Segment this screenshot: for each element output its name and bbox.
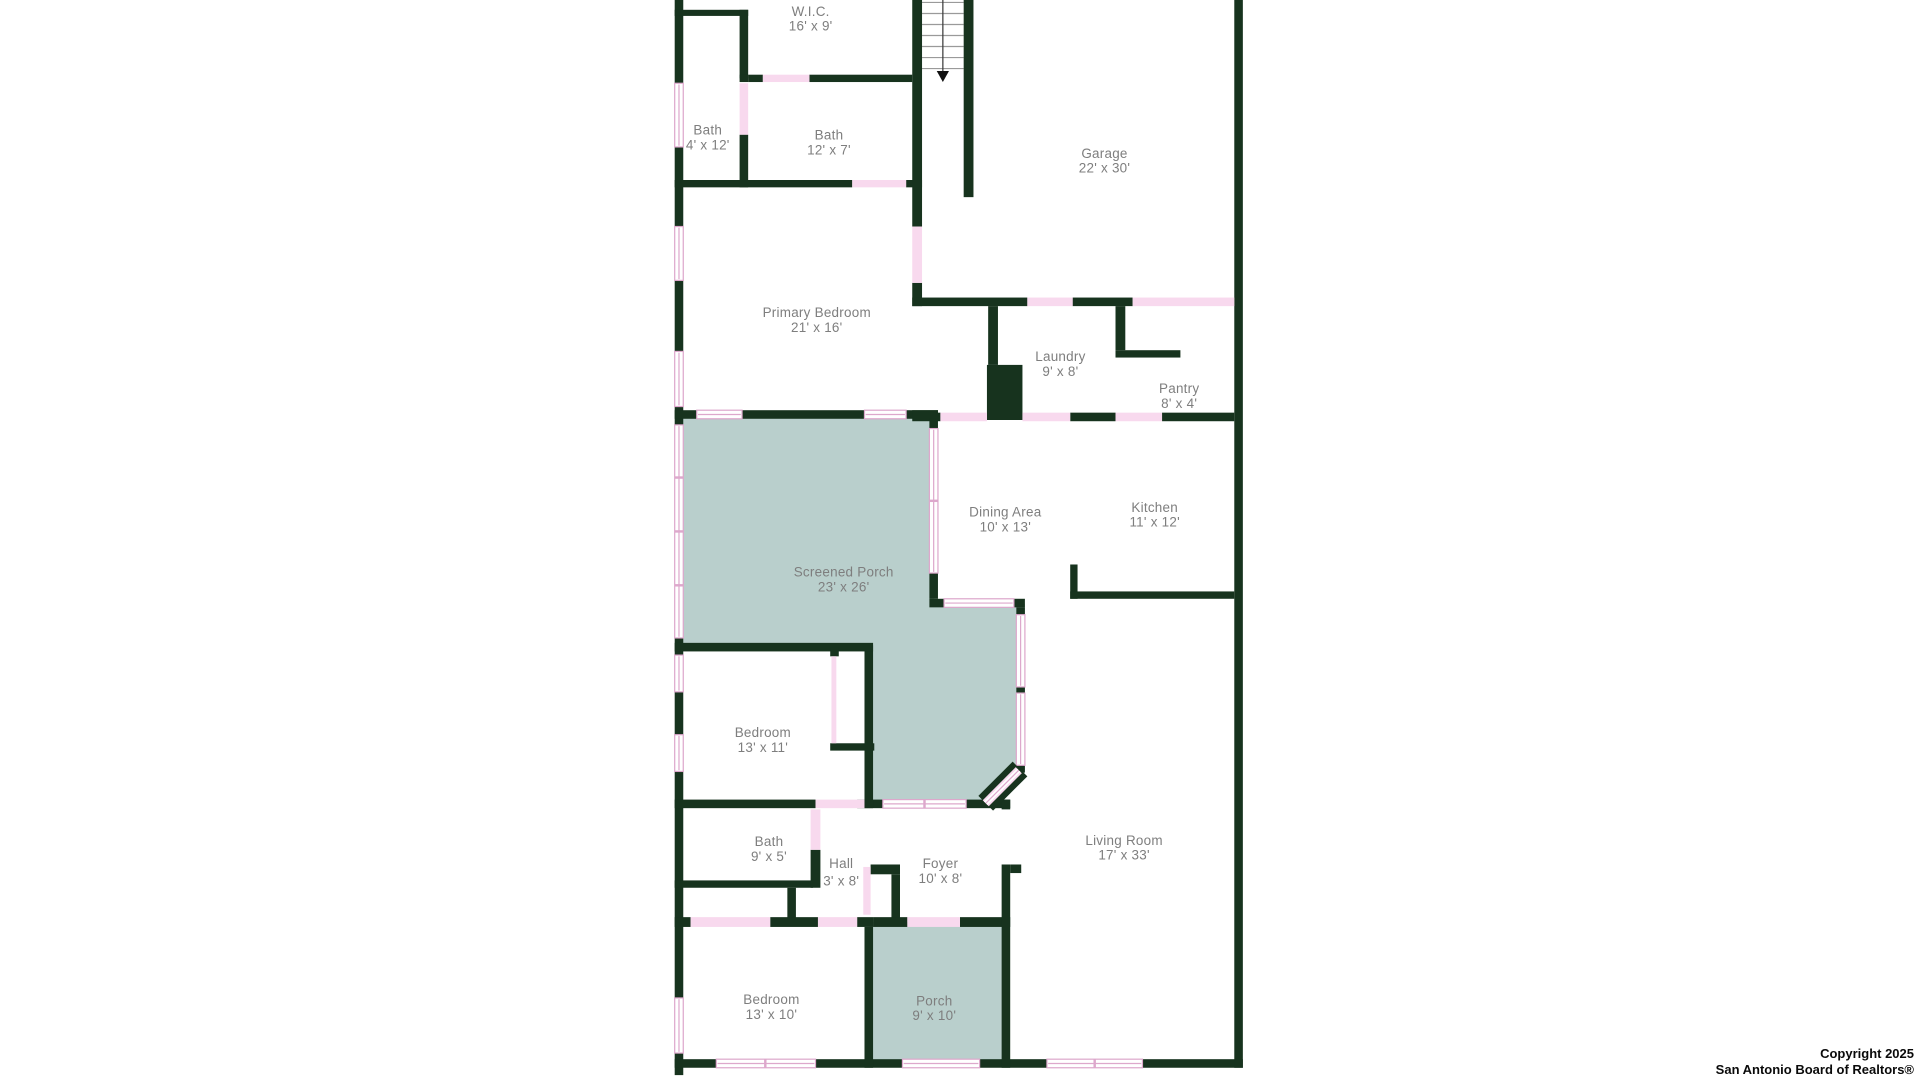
room-dims-laundry: 9' x 8': [1042, 364, 1078, 379]
room-dims-foyer: 10' x 8': [919, 871, 963, 886]
room-label-bath-4x12: Bath: [693, 123, 722, 138]
room-label-bedroom-13x11: Bedroom: [735, 725, 791, 740]
door-opening: [940, 413, 987, 422]
door-opening: [1116, 413, 1163, 422]
room-label-primary-bedroom: Primary Bedroom: [763, 305, 871, 320]
room-label-hall: Hall: [829, 856, 853, 871]
door-opening: [1027, 298, 1072, 307]
staircase: [922, 0, 964, 82]
room-dims-porch: 9' x 10': [912, 1008, 956, 1023]
room-label-porch: Porch: [916, 993, 952, 1008]
room-dims-garage: 22' x 30': [1079, 161, 1130, 176]
door-opening: [811, 809, 821, 849]
copyright-line1: Copyright 2025: [1716, 1046, 1914, 1061]
door-opening: [852, 180, 906, 187]
room-label-kitchen: Kitchen: [1131, 500, 1178, 515]
door-opening: [740, 83, 749, 134]
door-opening: [912, 227, 922, 283]
room-label-garage: Garage: [1081, 146, 1127, 161]
room-dims-bath-9x5: 9' x 5': [751, 849, 787, 864]
room-label-foyer: Foyer: [923, 856, 959, 871]
door-opening: [1022, 413, 1070, 422]
room-dims-bedroom-13x11: 13' x 11': [738, 740, 788, 755]
room-dims-hall: 3' x 8': [823, 873, 859, 888]
room-dims-kitchen: 11' x 12': [1129, 515, 1179, 530]
door-opening: [863, 867, 870, 915]
floor-plan-drawing: W.I.C. 16' x 9' Bath 4' x 12' Bath 12' x…: [0, 0, 1920, 1080]
door-opening: [816, 800, 865, 809]
door-opening: [691, 917, 771, 927]
room-label-laundry: Laundry: [1035, 349, 1085, 364]
room-label-bath-12x7: Bath: [815, 128, 844, 143]
room-label-wic: W.I.C.: [792, 4, 830, 19]
room-label-screened-porch: Screened Porch: [794, 565, 894, 580]
room-dims-living-room: 17' x 33': [1098, 848, 1149, 863]
copyright-line2: San Antonio Board of Realtors®: [1716, 1062, 1914, 1077]
room-dims-primary-bedroom: 21' x 16': [791, 320, 842, 335]
room-dims-screened-porch: 23' x 26': [818, 579, 869, 594]
copyright-notice: Copyright 2025 San Antonio Board of Real…: [1716, 1046, 1914, 1077]
room-label-dining-area: Dining Area: [969, 505, 1042, 520]
room-label-pantry: Pantry: [1159, 381, 1199, 396]
floor-plan-page: W.I.C. 16' x 9' Bath 4' x 12' Bath 12' x…: [0, 0, 1920, 1080]
room-dims-wic: 16' x 9': [789, 19, 833, 34]
room-dims-bath-12x7: 12' x 7': [807, 142, 851, 157]
room-dims-bath-4x12: 4' x 12': [686, 137, 730, 152]
door-opening: [831, 656, 836, 743]
stairs-down-arrow-icon: [937, 71, 949, 82]
room-label-bath-9x5: Bath: [755, 834, 784, 849]
door-opening: [763, 75, 810, 82]
door-opening: [907, 917, 960, 927]
room-label-living-room: Living Room: [1085, 833, 1162, 848]
room-dims-bedroom-13x10: 13' x 10': [746, 1007, 797, 1022]
door-opening: [818, 917, 857, 927]
door-opening: [1133, 298, 1235, 307]
room-dims-dining-area: 10' x 13': [980, 519, 1031, 534]
room-dims-pantry: 8' x 4': [1161, 396, 1197, 411]
room-label-bedroom-13x10: Bedroom: [743, 992, 799, 1007]
